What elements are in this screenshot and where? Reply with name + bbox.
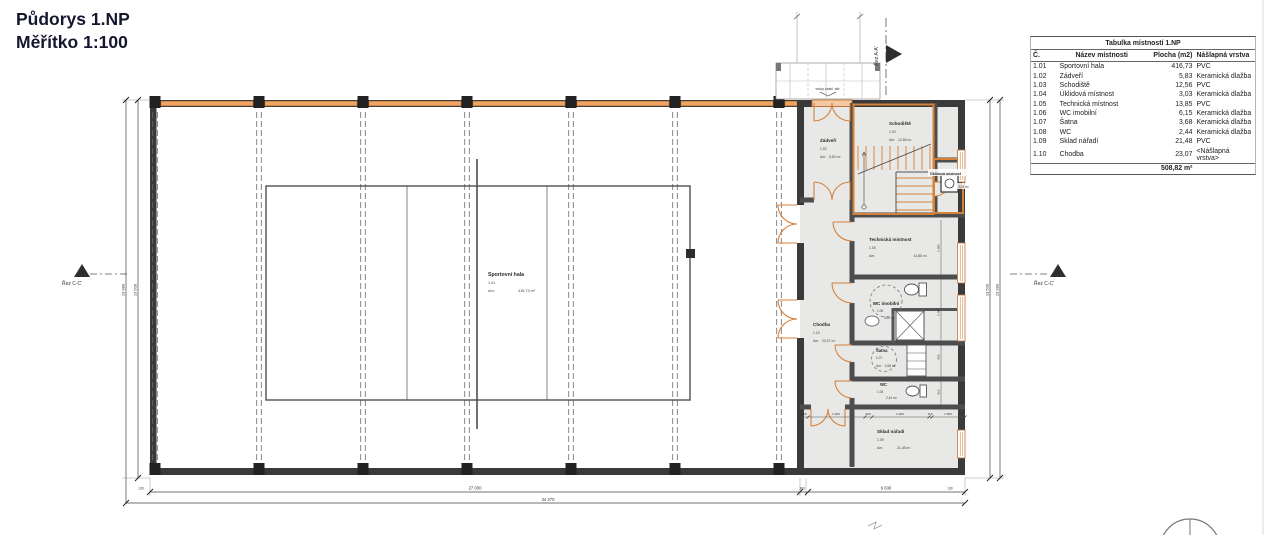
dim-chain: 2 980 bbox=[937, 308, 941, 316]
dim-right-inner: 13 500 bbox=[985, 283, 990, 296]
room-label-hala-num: 1.01 bbox=[488, 281, 495, 285]
room-label-schodiste-name: Schodiště bbox=[889, 121, 911, 126]
room-label-zadveri-name: Zádveří bbox=[820, 138, 837, 143]
dim-left-outer: 13 980 bbox=[121, 283, 126, 296]
room-label-wc-name: WC bbox=[880, 382, 887, 387]
washbasin-icon bbox=[865, 316, 879, 326]
room-table-title: Tabulka místností 1.NP bbox=[1031, 37, 1255, 50]
dim-chain: 2 400 bbox=[832, 412, 840, 416]
room-label-uklidova-name: Úklidová místnost bbox=[930, 171, 962, 176]
room-label-chodba-num: 1.10 bbox=[813, 331, 820, 335]
dim-hall-width: 27 000 bbox=[469, 486, 482, 491]
room-label-sklad-area-prefix: Am: bbox=[877, 446, 883, 450]
room-label-wcimob-name: WC imobilní bbox=[873, 301, 900, 306]
table-total: 508,82 m² bbox=[1146, 163, 1195, 174]
section-label-cc-right: Řez C-C' bbox=[1034, 279, 1054, 287]
room-label-technicka-area-prefix: Am: bbox=[869, 254, 875, 258]
room-label-schodiste-num: 1.03 bbox=[889, 130, 896, 134]
dim-right-outer: 13 980 bbox=[995, 283, 1000, 296]
volleyball-court bbox=[266, 159, 695, 429]
col-name: Název místnosti bbox=[1058, 50, 1146, 62]
room-label-satna-name: Šatna bbox=[876, 348, 888, 353]
room-label-sklad-area: 21,48 m² bbox=[897, 446, 911, 450]
section-arrow-icon bbox=[74, 264, 90, 277]
room-label-technicka-name: Technická místnost bbox=[869, 237, 912, 242]
dim-chain: 905 bbox=[937, 354, 941, 359]
room-label-uklidova-area: 3,03 m² bbox=[958, 185, 969, 189]
entrance-canopy: vstup zaskl. stě. bbox=[776, 12, 880, 99]
room-label-wc-num: 1.08 bbox=[877, 390, 883, 394]
room-label-wc-area: 2,44 m² bbox=[886, 396, 897, 400]
dim-wall: 300 bbox=[799, 487, 805, 491]
room-label-hala-name: Sportovní hala bbox=[488, 272, 524, 278]
room-label-zadveri-area: Am:5,83 m² bbox=[820, 155, 841, 159]
section-arrow-icon bbox=[886, 45, 902, 63]
section-label-cc-left: Řez C-C' bbox=[62, 279, 82, 287]
room-label-wcimob-num: 1.06 bbox=[877, 309, 883, 313]
room-label-technicka-num: 1.05 bbox=[869, 246, 876, 250]
room-label-satna-num: 1.07 bbox=[876, 356, 882, 360]
table-row: 1.10Chodba23,07<Nášlapná vrstva> bbox=[1031, 146, 1255, 163]
room-label-schodiste-area: Am:12,56 m² bbox=[889, 138, 912, 142]
dim-chain: 1 500 bbox=[944, 412, 952, 416]
room-label-sklad-num: 1.09 bbox=[877, 438, 884, 442]
room-label-hala-area: 416,73 m² bbox=[518, 289, 536, 293]
room-label-chodba-area: Am:23,07 m² bbox=[813, 339, 836, 343]
room-label-sklad-name: Sklad nářadí bbox=[877, 429, 905, 434]
room-label-satna-area: Am:3,68 m² bbox=[876, 364, 895, 368]
dim-chain: 115 bbox=[928, 412, 933, 416]
table-row: 1.09Sklad nářadí21,48PVC bbox=[1031, 137, 1255, 146]
dim-total-width: 34 370 bbox=[542, 497, 555, 502]
net-post bbox=[686, 249, 695, 258]
dim-chain: 910 bbox=[937, 389, 941, 394]
toilet-icon bbox=[919, 283, 927, 296]
table-row: 1.08WC2,44Keramická dlažba bbox=[1031, 128, 1255, 137]
room-table: Tabulka místností 1.NP Č. Název místnost… bbox=[1030, 36, 1256, 175]
column-grid-lines bbox=[153, 112, 782, 462]
table-row: 1.02Zádveří5,83Keramická dlažba bbox=[1031, 71, 1255, 80]
col-num: Č. bbox=[1031, 50, 1058, 62]
dim-left-inner: 13 500 bbox=[133, 283, 138, 296]
drawing-sheet: Půdorys 1.NP Měřítko 1:100 bbox=[0, 0, 1280, 535]
col-layer: Nášlapná vrstva bbox=[1194, 50, 1255, 62]
columns bbox=[150, 96, 785, 475]
section-arrow-icon bbox=[1050, 264, 1066, 277]
entrance-note: vstup zaskl. stě. bbox=[816, 87, 841, 91]
dim-chain: 2 400 bbox=[896, 412, 904, 416]
dim-chain: 300 bbox=[865, 412, 870, 416]
dim-block-width: 6 630 bbox=[881, 486, 892, 491]
boiler-icon bbox=[941, 175, 958, 192]
dim-small-left: 130 bbox=[138, 487, 144, 491]
table-row: 1.04Úklidová místnost3,03Keramická dlažb… bbox=[1031, 90, 1255, 99]
col-area: Plocha (m2) bbox=[1146, 50, 1195, 62]
section-label-aa: Řez A-A' bbox=[872, 46, 880, 65]
bench-icon bbox=[907, 345, 926, 376]
room-label-wcimob-area: 6,15 m² bbox=[884, 316, 895, 320]
table-row: 1.05Technická místnost13,85PVC bbox=[1031, 100, 1255, 109]
dim-small-right: 130 bbox=[947, 487, 953, 491]
table-row: 1.07Šatna3,68Keramická dlažba bbox=[1031, 118, 1255, 127]
room-label-zadveri-num: 1.02 bbox=[820, 147, 827, 151]
dim-chain: 2 680 bbox=[937, 244, 941, 252]
table-row: 1.06WC imobilní6,15Keramická dlažba bbox=[1031, 109, 1255, 118]
room-label-hala-area-prefix: Am: bbox=[488, 289, 495, 293]
toilet-icon bbox=[920, 385, 927, 397]
section-mark-bottom bbox=[868, 522, 882, 529]
room-label-technicka-area: 13,85 m² bbox=[914, 254, 928, 258]
table-row: 1.01Sportovní hala416,73PVC bbox=[1031, 62, 1255, 72]
room-label-chodba-name: Chodba bbox=[813, 322, 831, 327]
table-row: 1.03Schodiště12,56PVC bbox=[1031, 81, 1255, 90]
dim-chain: 300 bbox=[801, 412, 806, 416]
